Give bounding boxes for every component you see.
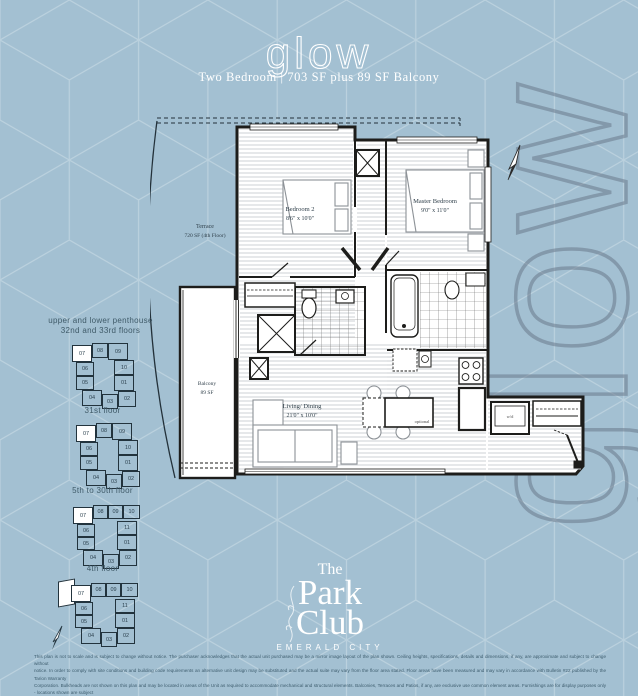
keyplan-caption: 5th to 30th floor — [35, 486, 170, 496]
keyplan-unit-08: 08 — [92, 343, 108, 358]
floor-plan: Terrace 720 SF (4th Floor) Balcony 89 SF — [150, 112, 590, 492]
terrace-detail: 720 SF (4th Floor) — [184, 232, 225, 239]
keyplan-unit-09: 09 — [108, 343, 128, 360]
keyplan-unit-10: 10 — [123, 505, 140, 519]
keyplan-caption: 31st floor — [40, 406, 165, 416]
keyplan-unit-03: 03 — [101, 632, 117, 647]
keyplan-unit-06: 06 — [80, 442, 98, 456]
keyplan-unit-06: 06 — [75, 602, 93, 615]
keyplan-unit-09: 09 — [112, 423, 132, 440]
keyplan-caption: 32nd and 33rd floors — [28, 326, 173, 336]
keyplan-unit-04: 04 — [81, 628, 101, 644]
master-name: Master Bedroom — [413, 198, 457, 205]
bedroom2-name: Bedroom 2 — [285, 206, 314, 213]
balcony-area: 89 SF — [201, 390, 214, 396]
logo-flourish-icon — [282, 584, 304, 644]
disclaimer-line: This plan is not to scale and is subject… — [34, 653, 606, 667]
terrace-name: Terrace — [196, 224, 214, 230]
optional-label: optional — [415, 419, 430, 424]
keyplan-unit-01: 01 — [118, 455, 138, 471]
keyplan-unit-01: 01 — [115, 613, 135, 628]
terrace-label: Terrace 720 SF (4th Floor) — [184, 224, 225, 239]
keyplan-unit-08: 08 — [91, 583, 106, 597]
keyplan-penthouse: upper and lower penthouse 32nd and 33rd … — [28, 316, 173, 419]
keyplan-unit-02: 02 — [117, 628, 135, 644]
keyplan-unit-08: 08 — [96, 423, 112, 438]
shaft-top — [356, 150, 379, 176]
keyplan-unit-05: 05 — [76, 376, 94, 390]
keyplan-unit-06: 06 — [77, 524, 95, 537]
keyplan-unit-01: 01 — [117, 535, 137, 550]
living-dims: 21'0" x 10'0" — [286, 413, 318, 419]
master-bath — [391, 272, 486, 348]
keyplan-unit-10: 10 — [121, 583, 138, 597]
master-dims: 9'0" x 11'0" — [421, 208, 449, 214]
keyplan-caption: 4th floor — [35, 564, 170, 574]
subtitle: Two Bedroom | 703 SF plus 89 SF Balcony — [0, 70, 638, 85]
living-name: Living/ Dining — [283, 403, 323, 410]
disclaimer-line: Corporation. Bulkheads are not shown on … — [34, 682, 606, 696]
keyplan-unit-04: 04 — [86, 470, 106, 486]
keyplan-unit-09: 09 — [106, 583, 121, 597]
keyplan-unit-04: 04 — [82, 390, 102, 406]
keyplan-unit-02: 02 — [118, 391, 136, 407]
keyplan-unit-05: 05 — [75, 615, 93, 628]
keyplan-unit-08: 08 — [93, 505, 108, 519]
hall-closet — [245, 283, 295, 307]
keyplan-caption: upper and lower penthouse — [28, 316, 173, 326]
bathroom — [295, 287, 365, 355]
keyplan-unit-07: 07 — [71, 585, 91, 602]
bedroom2-dims: 8'6" x 10'0" — [286, 216, 315, 222]
floorplan-sheet: glow glow Two Bedroom | 703 SF plus 89 S… — [0, 0, 638, 696]
keyplan-unit-02: 02 — [122, 471, 140, 487]
living-window — [245, 469, 445, 474]
disclaimer: This plan is not to scale and is subject… — [34, 653, 606, 696]
balcony: Balcony 89 SF — [180, 287, 237, 478]
keyplan-unit-07: 07 — [76, 425, 96, 442]
disclaimer-line: notice. In order to comply with site con… — [34, 667, 606, 681]
north-arrow-icon — [508, 145, 520, 180]
keyplan-unit-10: 10 — [114, 360, 134, 375]
keyplan-unit-11: 11 — [115, 599, 135, 613]
keyplan-unit-11: 11 — [117, 521, 137, 535]
logo-tagline: EMERALD CITY — [240, 643, 420, 652]
keyplan-unit-10: 10 — [118, 440, 138, 455]
keyplan-unit-05: 05 — [77, 537, 95, 550]
keyplan-unit-07: 07 — [72, 345, 92, 362]
mini-north-arrow-icon — [48, 624, 66, 652]
keyplan-unit-07: 07 — [73, 507, 93, 524]
keyplan-unit-09: 09 — [108, 505, 123, 519]
park-club-logo: The Park Club EMERALD CITY — [240, 562, 420, 652]
balcony-door — [234, 300, 240, 358]
logo-club: Club — [240, 608, 420, 638]
wd-label: w/d — [507, 414, 515, 419]
keyplan-unit-01: 01 — [114, 375, 134, 391]
keyplan-cluster: 0708091006110501040302 — [59, 579, 159, 657]
keyplan-unit-06: 06 — [76, 362, 94, 376]
balcony-name: Balcony — [198, 381, 217, 387]
keyplan-unit-05: 05 — [80, 456, 98, 470]
